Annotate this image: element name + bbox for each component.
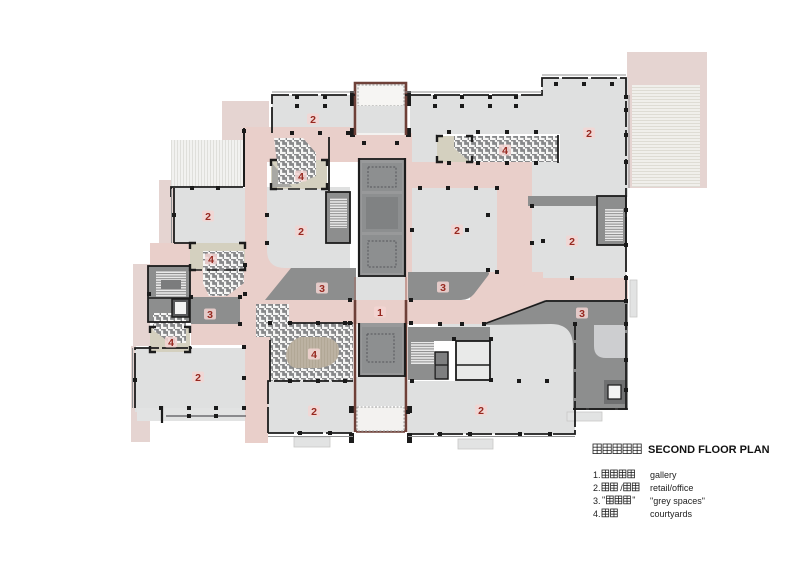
svg-text:2.: 2. — [593, 483, 601, 493]
svg-text:4: 4 — [298, 171, 304, 183]
svg-text:3: 3 — [579, 308, 585, 320]
svg-text:4: 4 — [168, 337, 174, 349]
svg-text:2: 2 — [311, 406, 317, 418]
svg-text:4: 4 — [502, 145, 508, 157]
svg-text:3.: 3. — [593, 496, 601, 506]
svg-text:courtyards: courtyards — [650, 509, 693, 519]
svg-text:1: 1 — [377, 307, 383, 319]
svg-text:gallery: gallery — [650, 470, 677, 480]
svg-text:2: 2 — [454, 225, 460, 237]
svg-text:2: 2 — [586, 128, 592, 140]
svg-text:4: 4 — [208, 254, 214, 266]
svg-text:4.: 4. — [593, 509, 601, 519]
svg-text:3: 3 — [440, 282, 446, 294]
svg-text:": " — [602, 495, 605, 505]
svg-text:2: 2 — [569, 236, 575, 248]
svg-text:"grey spaces": "grey spaces" — [650, 496, 705, 506]
svg-text:2: 2 — [298, 226, 304, 238]
svg-text:1.: 1. — [593, 470, 601, 480]
svg-text:2: 2 — [195, 372, 201, 384]
svg-text:3: 3 — [319, 283, 325, 295]
svg-text:2: 2 — [205, 211, 211, 223]
svg-text:3: 3 — [207, 309, 213, 321]
svg-text:retail/office: retail/office — [650, 483, 693, 493]
svg-text:2: 2 — [310, 114, 316, 126]
svg-text:SECOND FLOOR PLAN: SECOND FLOOR PLAN — [648, 444, 770, 456]
svg-text:": " — [632, 495, 635, 505]
svg-text:2: 2 — [478, 405, 484, 417]
svg-text:4: 4 — [311, 349, 317, 361]
